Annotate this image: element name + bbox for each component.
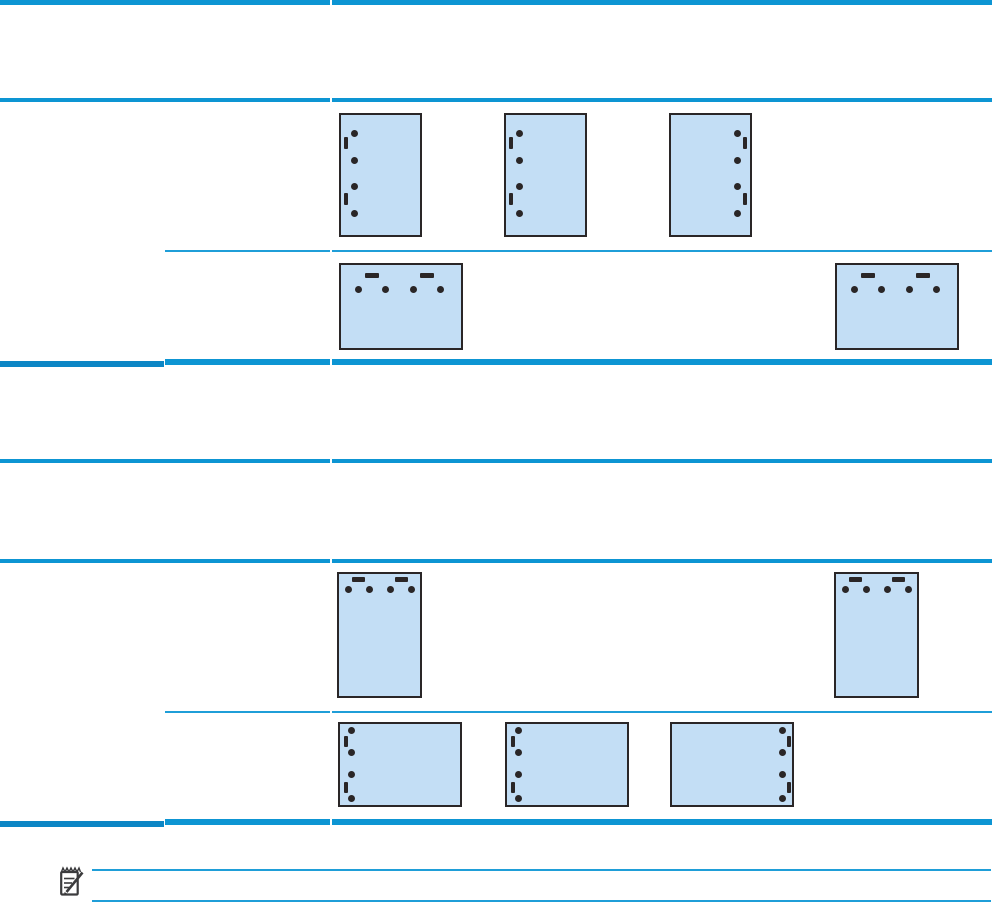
punch-hole-dot bbox=[516, 210, 523, 217]
staple-mark bbox=[420, 273, 434, 278]
staple-mark bbox=[916, 273, 930, 278]
staple-mark bbox=[511, 736, 515, 747]
staple-mark bbox=[344, 193, 348, 205]
punch-hole-dot bbox=[351, 130, 358, 137]
portrait-page-punch-left-2 bbox=[504, 113, 587, 237]
punch-hole-dot bbox=[779, 749, 786, 756]
landscape-page-punch-top-1 bbox=[339, 263, 463, 350]
punch-hole-dot bbox=[516, 157, 523, 164]
landscape-page-punch-left-1 bbox=[338, 722, 462, 807]
punch-hole-dot bbox=[366, 586, 373, 593]
punch-hole-dot bbox=[905, 586, 912, 593]
punch-hole-dot bbox=[734, 130, 741, 137]
punch-hole-dot bbox=[408, 586, 415, 593]
punch-hole-dot bbox=[387, 586, 394, 593]
table-rule-table2-bottom-border-right bbox=[165, 819, 330, 825]
table-rule-table2-subrow-divider bbox=[165, 711, 330, 713]
punch-hole-dot bbox=[863, 586, 870, 593]
staple-mark bbox=[395, 577, 408, 582]
punch-hole-dot bbox=[516, 130, 523, 137]
punch-hole-dot bbox=[779, 727, 786, 734]
staple-mark bbox=[743, 193, 747, 205]
punch-hole-dot bbox=[355, 286, 362, 293]
staple-mark bbox=[849, 577, 862, 582]
punch-hole-dot bbox=[516, 183, 523, 190]
punch-hole-dot bbox=[779, 771, 786, 778]
punch-hole-dot bbox=[906, 286, 913, 293]
punch-hole-dot bbox=[851, 286, 858, 293]
staple-mark bbox=[861, 273, 875, 278]
staple-mark bbox=[787, 782, 791, 793]
staple-mark bbox=[344, 137, 348, 149]
manual-page bbox=[0, 0, 992, 903]
staple-mark bbox=[352, 577, 365, 582]
table-rule-table2-bottom-border-left bbox=[0, 821, 164, 827]
punch-hole-dot bbox=[351, 183, 358, 190]
punch-hole-dot bbox=[348, 749, 355, 756]
table-rule-table2-top-border bbox=[332, 459, 992, 463]
staple-mark bbox=[344, 782, 348, 793]
punch-hole-dot bbox=[779, 795, 786, 802]
punch-hole-dot bbox=[515, 727, 522, 734]
punch-hole-dot bbox=[878, 286, 885, 293]
punch-hole-dot bbox=[734, 183, 741, 190]
staple-mark bbox=[743, 137, 747, 149]
table-rule-table2-top-border bbox=[0, 459, 330, 463]
staple-mark bbox=[365, 273, 379, 278]
table-rule-table1-top-border bbox=[332, 0, 992, 5]
table-rule-table1-subrow-divider bbox=[165, 250, 330, 252]
table-rule-table2-bottom-border-right bbox=[332, 819, 992, 825]
landscape-page-punch-left-2 bbox=[505, 722, 629, 807]
table-rule-table1-header-row-border bbox=[0, 98, 330, 102]
landscape-page-punch-top-2 bbox=[835, 263, 959, 350]
punch-hole-dot bbox=[348, 795, 355, 802]
punch-hole-dot bbox=[734, 157, 741, 164]
punch-hole-dot bbox=[345, 586, 352, 593]
staple-mark bbox=[509, 137, 513, 149]
portrait-page-punch-left-1 bbox=[339, 113, 422, 237]
table-rule-table1-top-border bbox=[0, 0, 330, 5]
portrait-page-punch-right bbox=[669, 113, 752, 237]
table-rule-table1-bottom-border-right bbox=[332, 359, 992, 365]
table-rule-table1-bottom-border-right bbox=[165, 359, 330, 365]
table-rule-table2-header-row-border bbox=[332, 559, 992, 563]
table-rule-table1-bottom-border-left bbox=[0, 361, 164, 367]
punch-hole-dot bbox=[515, 795, 522, 802]
table-rule-table2-header-row-border bbox=[0, 559, 330, 563]
punch-hole-dot bbox=[382, 286, 389, 293]
punch-hole-dot bbox=[437, 286, 444, 293]
landscape-page-punch-right bbox=[670, 722, 794, 807]
punch-hole-dot bbox=[515, 749, 522, 756]
punch-hole-dot bbox=[933, 286, 940, 293]
table-rule-note-top-border bbox=[92, 869, 991, 871]
punch-hole-dot bbox=[842, 586, 849, 593]
punch-hole-dot bbox=[351, 210, 358, 217]
staple-mark bbox=[892, 577, 905, 582]
punch-hole-dot bbox=[734, 210, 741, 217]
note-icon bbox=[59, 866, 86, 897]
punch-hole-dot bbox=[348, 771, 355, 778]
portrait-page-punch-top-1 bbox=[337, 572, 422, 698]
table-rule-table1-subrow-divider bbox=[332, 250, 992, 252]
staple-mark bbox=[509, 193, 513, 205]
punch-hole-dot bbox=[348, 727, 355, 734]
staple-mark bbox=[787, 736, 791, 747]
portrait-page-punch-top-2 bbox=[834, 572, 919, 698]
punch-hole-dot bbox=[410, 286, 417, 293]
table-rule-table2-subrow-divider bbox=[332, 711, 992, 713]
table-rule-table1-header-row-border bbox=[332, 98, 992, 102]
punch-hole-dot bbox=[351, 157, 358, 164]
punch-hole-dot bbox=[884, 586, 891, 593]
punch-hole-dot bbox=[515, 771, 522, 778]
staple-mark bbox=[511, 782, 515, 793]
staple-mark bbox=[344, 736, 348, 747]
table-rule-note-bottom-border bbox=[92, 900, 991, 902]
